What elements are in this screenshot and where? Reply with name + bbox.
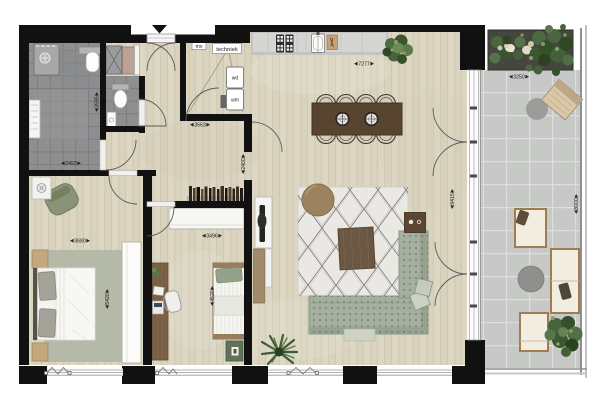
svg-text:techniek: techniek bbox=[216, 47, 238, 53]
svg-text:5420: 5420 bbox=[105, 293, 111, 305]
svg-text:8000: 8000 bbox=[574, 198, 580, 210]
svg-text:9415: 9415 bbox=[450, 193, 456, 205]
svg-text:2400: 2400 bbox=[241, 158, 247, 170]
svg-text:3680: 3680 bbox=[74, 239, 86, 245]
svg-text:2493: 2493 bbox=[65, 161, 77, 167]
svg-text:3496: 3496 bbox=[206, 234, 218, 240]
svg-text:wm: wm bbox=[231, 98, 239, 104]
svg-text:3595: 3595 bbox=[95, 96, 101, 108]
svg-text:3663: 3663 bbox=[194, 123, 206, 129]
svg-text:mv: mv bbox=[196, 44, 203, 50]
svg-text:4520: 4520 bbox=[210, 290, 216, 302]
svg-text:7277: 7277 bbox=[358, 62, 370, 68]
svg-text:wd: wd bbox=[232, 76, 239, 82]
svg-text:3250: 3250 bbox=[513, 75, 525, 81]
